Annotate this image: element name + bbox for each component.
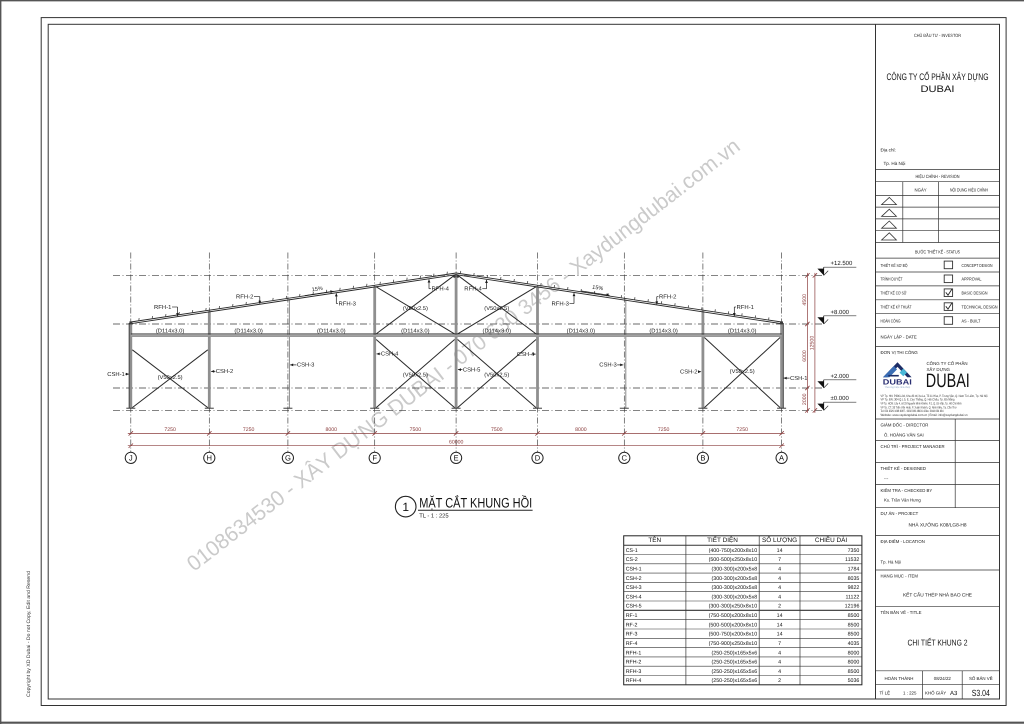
- svg-text:4: 4: [778, 669, 781, 675]
- svg-text:CSH-2: CSH-2: [626, 576, 642, 582]
- svg-text:4: 4: [778, 594, 781, 600]
- svg-text:7: 7: [778, 641, 781, 647]
- svg-text:+8.000: +8.000: [831, 309, 850, 316]
- svg-text:4: 4: [778, 576, 781, 582]
- svg-text:Địa chỉ:: Địa chỉ:: [881, 148, 896, 153]
- svg-text:8500: 8500: [848, 622, 860, 628]
- svg-text:7350: 7350: [848, 548, 860, 554]
- svg-text:4: 4: [778, 660, 781, 666]
- svg-text:E: E: [454, 454, 459, 463]
- svg-text:4: 4: [778, 650, 781, 656]
- svg-text:CSH-1: CSH-1: [107, 371, 125, 378]
- svg-text:RFH-3: RFH-3: [339, 301, 357, 308]
- svg-text:CSH-1: CSH-1: [626, 567, 642, 573]
- svg-text:(750-500)x200x8x10: (750-500)x200x8x10: [709, 613, 758, 619]
- svg-text:1 : 225: 1 : 225: [903, 690, 917, 695]
- svg-text:AS - BUILT: AS - BUILT: [962, 318, 981, 323]
- svg-text:±0.000: ±0.000: [831, 395, 850, 402]
- svg-text:Copyright by XD Dubai - Do not: Copyright by XD Dubai - Do not Copy, Edi…: [26, 571, 32, 697]
- svg-text:DỰ ÁN - PROJECT: DỰ ÁN - PROJECT: [881, 511, 919, 516]
- svg-text:9822: 9822: [848, 585, 860, 591]
- svg-text:TRÌNH DUYỆT: TRÌNH DUYỆT: [881, 277, 903, 282]
- svg-text:Ks. Trần Văn Hưng: Ks. Trần Văn Hưng: [884, 498, 921, 503]
- svg-text:6000: 6000: [802, 350, 808, 362]
- svg-text:(400-750)x200x8x10: (400-750)x200x8x10: [709, 548, 758, 554]
- svg-text:RFH-1: RFH-1: [626, 650, 642, 656]
- svg-text:THIẾT KẾ - DESIGNED: THIẾT KẾ - DESIGNED: [881, 466, 927, 471]
- svg-text:RF-4: RF-4: [626, 641, 638, 647]
- svg-text:BASIC DESIGN: BASIC DESIGN: [962, 291, 988, 296]
- svg-text:Thương hiệu nhà thép: Thương hiệu nhà thép: [884, 386, 910, 389]
- svg-text:BƯỚC THIẾT KẾ - STATUS: BƯỚC THIẾT KẾ - STATUS: [915, 248, 960, 254]
- svg-text:(D114x3.0): (D114x3.0): [156, 328, 185, 335]
- svg-text:14: 14: [777, 622, 783, 628]
- svg-text:Tp. Hà Nội: Tp. Hà Nội: [881, 560, 902, 565]
- svg-text:CSH-4: CSH-4: [381, 351, 399, 358]
- svg-text:Tp. Hà Nội: Tp. Hà Nội: [884, 161, 906, 166]
- svg-text:THIẾT KẾ KỸ THUẬT: THIẾT KẾ KỸ THUẬT: [881, 305, 912, 310]
- svg-text:CS-2: CS-2: [626, 557, 638, 563]
- svg-text:8500: 8500: [848, 632, 860, 638]
- svg-text:TỈ LỆ: TỈ LỆ: [880, 690, 891, 695]
- svg-text:(D114x3.0): (D114x3.0): [483, 328, 512, 335]
- svg-text:THIẾT KẾ SƠ BỘ: THIẾT KẾ SƠ BỘ: [881, 263, 909, 268]
- svg-text:1784: 1784: [848, 567, 860, 573]
- svg-text:C: C: [622, 454, 628, 463]
- svg-text:8000: 8000: [848, 650, 860, 656]
- svg-text:TECHNICAL DESIGN: TECHNICAL DESIGN: [962, 305, 998, 310]
- svg-text:(D114x3.0): (D114x3.0): [567, 328, 596, 335]
- svg-text:A3: A3: [950, 690, 958, 697]
- svg-text:11122: 11122: [845, 594, 859, 600]
- svg-text:NGÀY LẬP - DATE: NGÀY LẬP - DATE: [881, 334, 917, 339]
- svg-text:DUBAI: DUBAI: [921, 84, 955, 95]
- svg-text:---: ---: [884, 476, 889, 481]
- svg-text:TL - 1 : 225: TL - 1 : 225: [419, 513, 448, 520]
- svg-text:(D114x3.0): (D114x3.0): [649, 328, 678, 335]
- svg-text:HẠNG MỤC - ITEM: HẠNG MỤC - ITEM: [881, 574, 919, 579]
- svg-text:5036: 5036: [848, 678, 860, 684]
- svg-text:(V50x2.5): (V50x2.5): [730, 369, 755, 375]
- svg-text:14: 14: [777, 613, 783, 619]
- svg-text:7500: 7500: [491, 427, 503, 433]
- svg-text:CHỦ ĐẦU TƯ - INVESTOR: CHỦ ĐẦU TƯ - INVESTOR: [914, 32, 962, 38]
- svg-text:RFH-4: RFH-4: [432, 287, 450, 293]
- svg-text:DUBAI: DUBAI: [926, 370, 970, 392]
- svg-text:(250-250)x165x5x6: (250-250)x165x5x6: [712, 678, 758, 684]
- svg-text:S3.04: S3.04: [972, 688, 990, 698]
- svg-text:8000: 8000: [848, 660, 860, 666]
- svg-text:(300-300)x250x8x10: (300-300)x250x8x10: [709, 604, 758, 610]
- svg-text:RFH-2: RFH-2: [236, 294, 254, 301]
- svg-text:RFH-2: RFH-2: [659, 294, 677, 301]
- svg-text:+12.500: +12.500: [831, 260, 854, 267]
- svg-text:RFH-3: RFH-3: [626, 669, 642, 675]
- svg-text:NHÀ XƯỞNG K08/LG8-H8: NHÀ XƯỞNG K08/LG8-H8: [908, 522, 966, 529]
- svg-text:RF-2: RF-2: [626, 622, 638, 628]
- svg-text:4: 4: [778, 585, 781, 591]
- svg-text:(D114x3.0): (D114x3.0): [234, 328, 263, 335]
- svg-text:CSH-3: CSH-3: [599, 362, 617, 369]
- svg-text:RFH-4: RFH-4: [464, 287, 482, 293]
- svg-text:14: 14: [777, 548, 783, 554]
- svg-text:08/24/22: 08/24/22: [934, 676, 952, 681]
- svg-text:RFH-1: RFH-1: [154, 305, 172, 311]
- svg-text:(500-500)x250x8x10: (500-500)x250x8x10: [709, 557, 758, 563]
- svg-text:(300-300)x200x5x8: (300-300)x200x5x8: [712, 594, 758, 600]
- svg-text:APPROVAL: APPROVAL: [962, 277, 983, 282]
- svg-text:8500: 8500: [848, 669, 860, 675]
- svg-text:(V50x2.5): (V50x2.5): [403, 306, 428, 312]
- svg-text:HOÀN CÔNG: HOÀN CÔNG: [881, 318, 901, 323]
- svg-text:RFH-4: RFH-4: [626, 678, 642, 684]
- svg-text:J: J: [129, 454, 133, 463]
- svg-text:TIẾT DIỆN: TIẾT DIỆN: [707, 536, 738, 544]
- svg-text:(250-250)x165x5x6: (250-250)x165x5x6: [712, 669, 758, 675]
- svg-text:CHỦ TRÌ - PROJECT MANAGER: CHỦ TRÌ - PROJECT MANAGER: [881, 444, 945, 449]
- svg-text:HIỆU CHỈNH - REVISION: HIỆU CHỈNH - REVISION: [916, 173, 960, 179]
- svg-text:4500: 4500: [802, 294, 808, 306]
- svg-text:7250: 7250: [164, 427, 176, 433]
- svg-text:+2.000: +2.000: [831, 373, 850, 380]
- svg-text:2: 2: [778, 678, 781, 684]
- svg-text:CHIỀU DÀI: CHIỀU DÀI: [815, 536, 848, 544]
- svg-text:12500: 12500: [809, 336, 815, 351]
- svg-text:HOÀN THÀNH: HOÀN THÀNH: [885, 676, 914, 681]
- svg-text:7250: 7250: [658, 427, 670, 433]
- svg-text:CSH-3: CSH-3: [626, 585, 642, 591]
- svg-text:CSH-3: CSH-3: [297, 362, 315, 369]
- svg-text:SỐ LƯỢNG: SỐ LƯỢNG: [762, 536, 797, 544]
- svg-text:7500: 7500: [410, 427, 422, 433]
- svg-text:RF-1: RF-1: [626, 613, 638, 619]
- svg-text:CONCEPT DESIGN: CONCEPT DESIGN: [962, 263, 993, 268]
- svg-text:Ô. HOÀNG VĂN SAI: Ô. HOÀNG VĂN SAI: [884, 433, 924, 438]
- svg-text:(V50x2.5): (V50x2.5): [484, 306, 509, 312]
- svg-text:8000: 8000: [575, 427, 587, 433]
- svg-text:RFH-3: RFH-3: [552, 301, 570, 308]
- svg-text:(300-300)x200x5x8: (300-300)x200x5x8: [712, 585, 758, 591]
- svg-text:60000: 60000: [449, 440, 464, 446]
- svg-text:(V50x2.5): (V50x2.5): [158, 375, 183, 381]
- svg-text:CSH-5: CSH-5: [626, 604, 642, 610]
- svg-text:(V50x2.5): (V50x2.5): [484, 372, 509, 378]
- svg-text:(D114x3.0): (D114x3.0): [401, 328, 430, 335]
- svg-text:CSH-5: CSH-5: [463, 366, 481, 373]
- svg-text:Website: www.xaydungdubai.com.: Website: www.xaydungdubai.com.vn | Email…: [881, 413, 968, 417]
- svg-text:RF-3: RF-3: [626, 632, 638, 638]
- svg-text:8500: 8500: [848, 613, 860, 619]
- svg-text:4035: 4035: [848, 641, 860, 647]
- svg-text:7250: 7250: [243, 427, 255, 433]
- svg-text:SỐ BẢN VẼ: SỐ BẢN VẼ: [969, 676, 993, 681]
- svg-text:(V50x2.5): (V50x2.5): [403, 372, 428, 378]
- svg-text:G: G: [285, 454, 291, 463]
- svg-text:ĐỊA ĐIỂM - LOCATION: ĐỊA ĐIỂM - LOCATION: [881, 539, 925, 544]
- svg-text:ĐƠN VỊ THI CÔNG: ĐƠN VỊ THI CÔNG: [881, 350, 919, 355]
- svg-text:1: 1: [402, 500, 409, 514]
- svg-text:7250: 7250: [736, 427, 748, 433]
- svg-text:CSH-2: CSH-2: [680, 369, 698, 376]
- svg-text:D: D: [535, 454, 541, 463]
- svg-text:(500-750)x200x8x10: (500-750)x200x8x10: [709, 632, 758, 638]
- svg-text:2: 2: [778, 604, 781, 610]
- svg-text:(300-300)x200x5x8: (300-300)x200x5x8: [712, 567, 758, 573]
- svg-text:CSH-4: CSH-4: [517, 351, 535, 358]
- svg-text:TÊN: TÊN: [648, 536, 661, 544]
- svg-text:B: B: [700, 454, 705, 463]
- svg-text:KẾT CẤU THÉP NHÀ BAO CHE: KẾT CẤU THÉP NHÀ BAO CHE: [903, 592, 972, 599]
- svg-text:(250-250)x165x5x6: (250-250)x165x5x6: [712, 660, 758, 666]
- svg-text:CÔNG TY CỔ PHẦN: CÔNG TY CỔ PHẦN: [927, 361, 968, 366]
- svg-text:RFH-2: RFH-2: [626, 660, 642, 666]
- svg-text:CSH-2: CSH-2: [216, 368, 234, 375]
- svg-text:KHỔ GIẤY: KHỔ GIẤY: [925, 690, 946, 695]
- svg-text:KIỂM TRA - CHECKED BY: KIỂM TRA - CHECKED BY: [881, 488, 933, 493]
- svg-text:11532: 11532: [845, 557, 859, 563]
- svg-text:NGÀY: NGÀY: [915, 187, 927, 192]
- svg-text:4: 4: [778, 567, 781, 573]
- svg-text:MẶT CẮT KHUNG HỒI: MẶT CẮT KHUNG HỒI: [419, 495, 532, 511]
- svg-text:GIÁM ĐỐC - DIRECTOR: GIÁM ĐỐC - DIRECTOR: [881, 423, 929, 428]
- svg-text:8035: 8035: [848, 576, 860, 582]
- svg-text:12196: 12196: [845, 604, 860, 610]
- svg-text:CSH-1: CSH-1: [790, 375, 808, 382]
- svg-text:CSH-4: CSH-4: [626, 594, 642, 600]
- svg-text:F: F: [372, 454, 377, 463]
- svg-text:CS-1: CS-1: [626, 548, 638, 554]
- svg-text:(750-900)x250x8x10: (750-900)x250x8x10: [709, 641, 758, 647]
- svg-text:CHI TIẾT KHUNG 2: CHI TIẾT KHUNG 2: [908, 638, 968, 648]
- svg-text:7: 7: [778, 557, 781, 563]
- svg-text:14: 14: [777, 632, 783, 638]
- svg-text:(D114x3.0): (D114x3.0): [317, 328, 346, 335]
- svg-text:(250-250)x165x5x6: (250-250)x165x5x6: [712, 650, 758, 656]
- svg-text:TÊN BẢN VẼ - TITLE: TÊN BẢN VẼ - TITLE: [881, 610, 922, 615]
- svg-text:CÔNG TY CỔ PHẦN XÂY DỰNG: CÔNG TY CỔ PHẦN XÂY DỰNG: [887, 71, 989, 83]
- svg-text:H: H: [207, 454, 212, 463]
- svg-text:(500-500)x200x8x10: (500-500)x200x8x10: [709, 622, 758, 628]
- svg-text:2000: 2000: [802, 393, 808, 405]
- svg-text:8000: 8000: [326, 427, 338, 433]
- svg-text:THIẾT KẾ CƠ SỞ: THIẾT KẾ CƠ SỞ: [881, 291, 907, 296]
- svg-text:(D114x3.0): (D114x3.0): [728, 328, 757, 335]
- svg-text:(300-300)x200x5x8: (300-300)x200x5x8: [712, 576, 758, 582]
- svg-text:NỘI DUNG HIỆU CHỈNH: NỘI DUNG HIỆU CHỈNH: [950, 186, 988, 192]
- svg-text:RFH-1: RFH-1: [737, 305, 755, 311]
